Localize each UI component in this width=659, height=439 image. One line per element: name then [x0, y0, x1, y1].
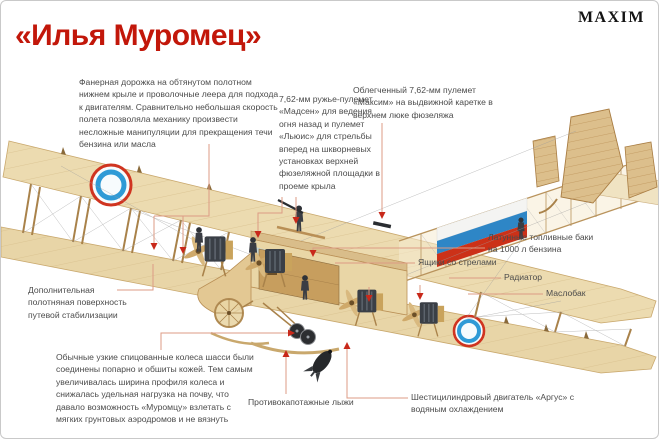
right-roundel — [454, 316, 484, 346]
left-roundel — [91, 165, 131, 205]
maxim-gun — [373, 221, 391, 228]
callout-fuel-tanks: Латунные топливные баки на 1000 л бензин… — [488, 231, 600, 256]
callout-wheels: Обычные узкие спицованные колеса шасси б… — [56, 351, 256, 425]
callout-maxim-gun: Облегченный 7,62-мм пулемет «Максим» на … — [353, 84, 496, 121]
page-title: «Илья Муромец» — [15, 19, 261, 53]
infographic-page: «Илья Муромец» MAXIM — [0, 0, 659, 439]
callout-engine-argus: Шестицилиндровый двигатель «Аргус» с вод… — [411, 391, 579, 416]
callout-radiator: Радиатор — [504, 271, 574, 283]
callout-oil-tank: Маслобак — [546, 287, 616, 299]
brand-logo: MAXIM — [578, 9, 645, 27]
callout-stabilizer: Дополнительная полотняная поверхность пу… — [28, 284, 131, 321]
callout-skis: Противокапотажные лыжи — [248, 396, 378, 408]
tail-fins — [533, 109, 657, 203]
callout-arrow-boxes: Ящики со стрелами — [418, 256, 528, 268]
anti-noseover-ski — [211, 333, 269, 344]
callout-walkway: Фанерная дорожка на обтянутом полотном н… — [79, 76, 280, 150]
